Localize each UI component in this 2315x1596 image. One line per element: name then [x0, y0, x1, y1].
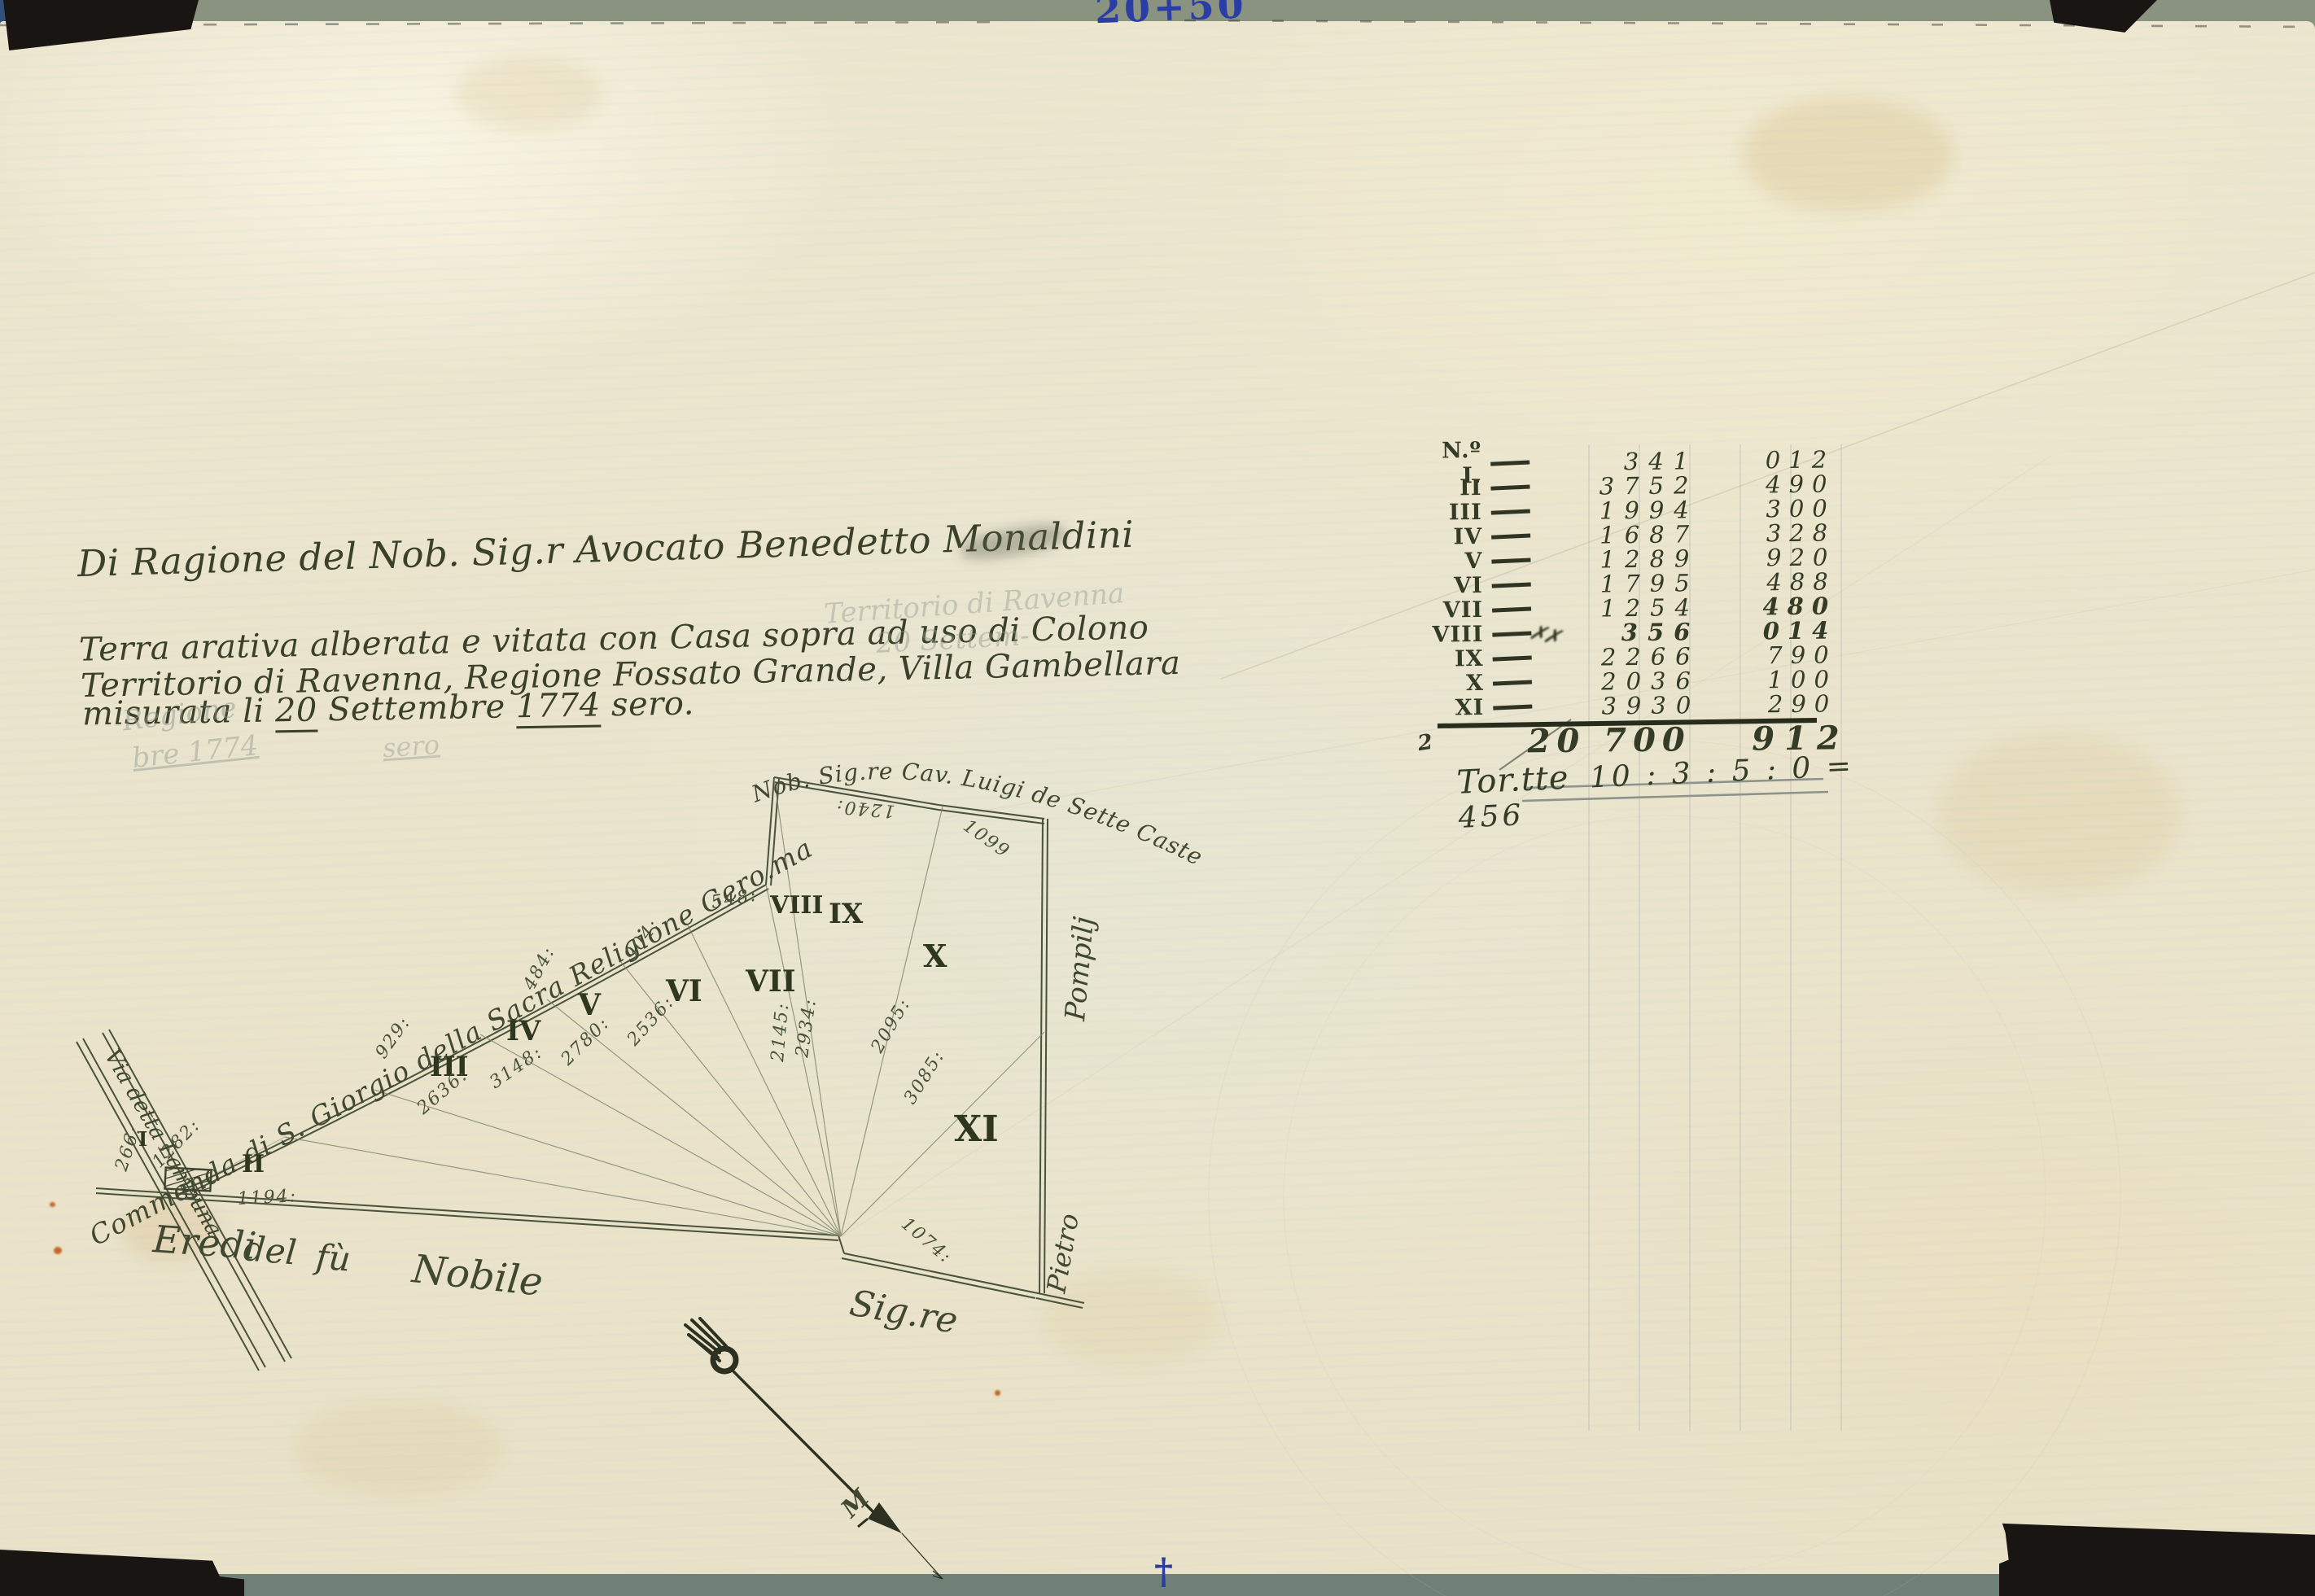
table-row: XI3930290 [1417, 691, 1857, 720]
row-label: VII [1416, 597, 1483, 623]
row-label: X [1417, 670, 1484, 696]
pencil-note: sero [382, 729, 440, 764]
row-dash [1482, 509, 1539, 514]
scanned-cadastral-map: Commenda di S. Giorgio della Sacra Relig… [0, 0, 2315, 1596]
row-label: XI [1417, 694, 1484, 720]
row-dash [1484, 680, 1541, 685]
archive-number-top: 20+50 [1094, 0, 1247, 32]
date-month: Settembre [317, 688, 516, 728]
paper-speck [995, 1390, 1000, 1396]
row-dash [1484, 656, 1541, 661]
row-dash [1483, 607, 1540, 612]
area-table: N.º I.341012 II3752490 III1994300 IV1687… [1415, 447, 1854, 452]
row-label: III [1416, 499, 1482, 525]
row-label: IV [1416, 523, 1482, 549]
conversion-label: Tor.tte [1456, 759, 1570, 802]
row-frac: 290 [1722, 689, 1837, 718]
row-label: VI [1416, 572, 1483, 598]
paper-sheet [0, 21, 2315, 1574]
paper-speck [54, 1247, 62, 1254]
row-area: 3930 [1541, 691, 1700, 720]
archive-cross-bottom: † [1154, 1551, 1173, 1593]
row-label: IX [1417, 645, 1484, 671]
row-label: II [1415, 474, 1481, 501]
date-day: 20 [275, 692, 318, 733]
row-dash [1482, 534, 1539, 539]
row-label: V [1416, 548, 1482, 574]
row-label: VIII [1416, 621, 1483, 647]
row-dash [1481, 485, 1538, 490]
row-dash [1482, 558, 1539, 563]
date-year: 1774 [516, 686, 602, 728]
total-carry: 2 [1416, 728, 1449, 756]
date-suffix: sero. [600, 684, 694, 724]
row-dash [1481, 461, 1538, 466]
row-dash [1484, 705, 1541, 710]
paper-speck [50, 1202, 55, 1207]
row-dash [1483, 583, 1540, 588]
